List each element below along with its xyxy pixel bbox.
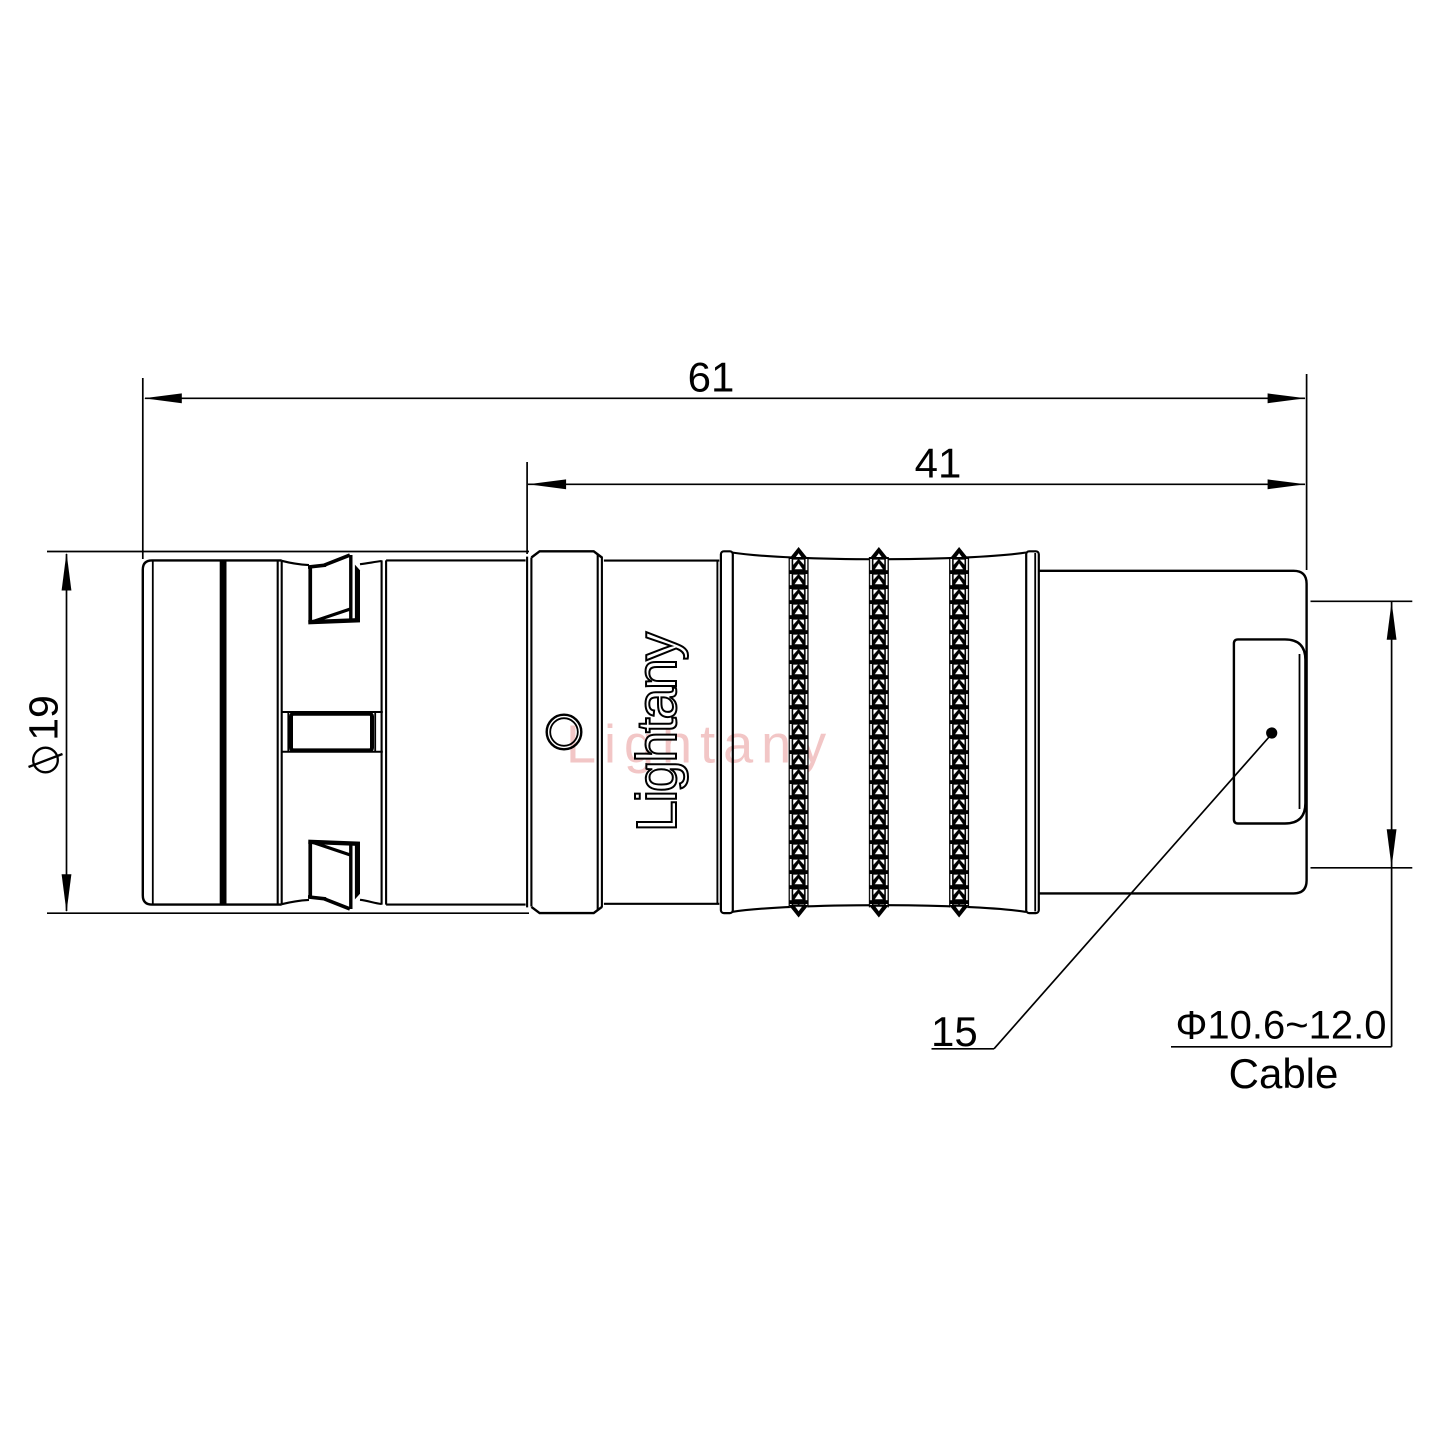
svg-text:15: 15	[931, 1008, 978, 1055]
svg-text:61: 61	[688, 354, 735, 401]
svg-text:Φ10.6~12.0: Φ10.6~12.0	[1176, 1004, 1387, 1048]
svg-text:19: 19	[21, 695, 67, 741]
svg-text:Cable: Cable	[1229, 1050, 1339, 1097]
svg-text:Lightany: Lightany	[625, 632, 689, 833]
svg-text:41: 41	[915, 440, 962, 487]
